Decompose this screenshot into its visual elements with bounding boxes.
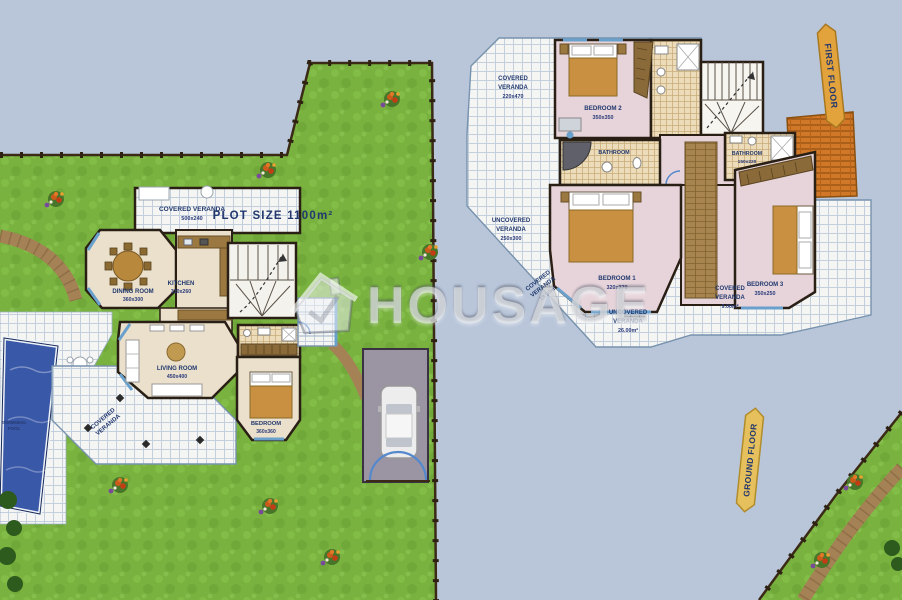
- plot-size-label: PLOT SIZE 1100m²: [213, 210, 334, 222]
- pool-label-2: POOL: [8, 426, 21, 431]
- driveway: [363, 349, 430, 482]
- sink: [602, 162, 612, 172]
- ground-floor-plan: SWIMMING POOL COVERED VERANDA COVERED VE…: [0, 0, 451, 600]
- veranda-tl-label: COVERED: [498, 76, 528, 82]
- bedroom1-dims: 320x370: [607, 285, 628, 291]
- sink: [258, 328, 270, 335]
- svg-text:220x470: 220x470: [503, 94, 524, 100]
- floorplan-image: SWIMMING POOL COVERED VERANDA COVERED VE…: [0, 0, 902, 600]
- bidet: [657, 86, 665, 94]
- svg-text:VERANDA: VERANDA: [715, 295, 745, 301]
- toilet: [633, 158, 641, 169]
- staircase: [701, 62, 763, 135]
- bed: [773, 206, 813, 274]
- toilet: [244, 330, 251, 337]
- sink: [655, 46, 668, 54]
- bbq-bench: [139, 187, 169, 200]
- bathroom-ground: [238, 325, 300, 357]
- wood-floor: [685, 142, 717, 298]
- ground-floor-ribbon: GROUND FLOOR: [736, 407, 765, 512]
- dining-room: DINING ROOM 360x300: [86, 230, 176, 308]
- car: [378, 386, 420, 458]
- shower-room-label: BATHROOM: [732, 151, 762, 157]
- kitchen-label: KITCHEN: [168, 281, 195, 287]
- living-label: LIVING ROOM: [157, 366, 197, 372]
- dining-label: DINING ROOM: [112, 289, 153, 295]
- bed: [561, 192, 641, 262]
- staircase: [228, 243, 296, 318]
- first-floor-ribbon: FIRST FLOOR: [817, 23, 846, 128]
- bedroom3-label: BEDROOM 3: [747, 282, 784, 288]
- shower-room-dims: 150x220: [738, 159, 757, 165]
- toilet: [657, 68, 665, 76]
- bathroom-label: BATHROOM: [598, 150, 630, 156]
- pool-label: SWIMMING: [2, 420, 26, 425]
- kitchen-dims: 310x260: [171, 289, 191, 295]
- rug: [167, 343, 185, 361]
- bathroom-main: BATHROOM: [560, 140, 660, 185]
- dressing-table: [559, 118, 581, 131]
- veranda-left-label: UNCOVERED: [492, 218, 531, 224]
- kitchen: KITCHEN 310x260: [168, 230, 232, 312]
- svg-text:250x300: 250x300: [501, 236, 522, 242]
- svg-text:VERANDA: VERANDA: [613, 319, 643, 325]
- veranda-br-label: COVERED: [715, 286, 745, 292]
- svg-text:26.00m²: 26.00m²: [618, 328, 638, 334]
- svg-text:9.00m²: 9.00m²: [721, 304, 738, 310]
- veranda-bottom-label: UNCOVERED: [609, 310, 648, 316]
- sofa-2: [152, 384, 202, 396]
- svg-text:VERANDA: VERANDA: [498, 85, 528, 91]
- bar-counter: [178, 310, 232, 320]
- svg-text:VERANDA: VERANDA: [496, 227, 526, 233]
- first-floor-plan: BEDROOM 2 350x350 BATHROOM: [451, 0, 902, 600]
- bedroom-ground: BEDROOM 360x360: [237, 357, 300, 440]
- bedroom-3: BEDROOM 3 350x250: [735, 152, 815, 308]
- sofa: [126, 340, 139, 382]
- wardrobe: [241, 344, 297, 355]
- entry-porch: [298, 298, 336, 346]
- bedroom-1: BEDROOM 1 320x370: [550, 185, 681, 312]
- bedroom-label: BEDROOM: [251, 421, 281, 427]
- bedroom2-dims: 350x350: [593, 115, 614, 121]
- living-room: LIVING ROOM 450x400: [118, 322, 238, 398]
- grill: [201, 186, 213, 198]
- living-dims: 450x400: [167, 374, 187, 380]
- bedroom-dims: 360x360: [256, 429, 276, 435]
- veranda-top-dims: 500x240: [181, 216, 202, 222]
- dining-dims: 360x300: [123, 297, 143, 303]
- bedroom2-label: BEDROOM 2: [584, 105, 622, 112]
- bed: [560, 44, 626, 96]
- bedroom1-label: BEDROOM 1: [598, 275, 636, 282]
- stool: [567, 132, 574, 139]
- bedroom3-dims: 350x250: [755, 291, 776, 297]
- dining-table: [113, 251, 143, 281]
- garden-wedge: [759, 412, 902, 600]
